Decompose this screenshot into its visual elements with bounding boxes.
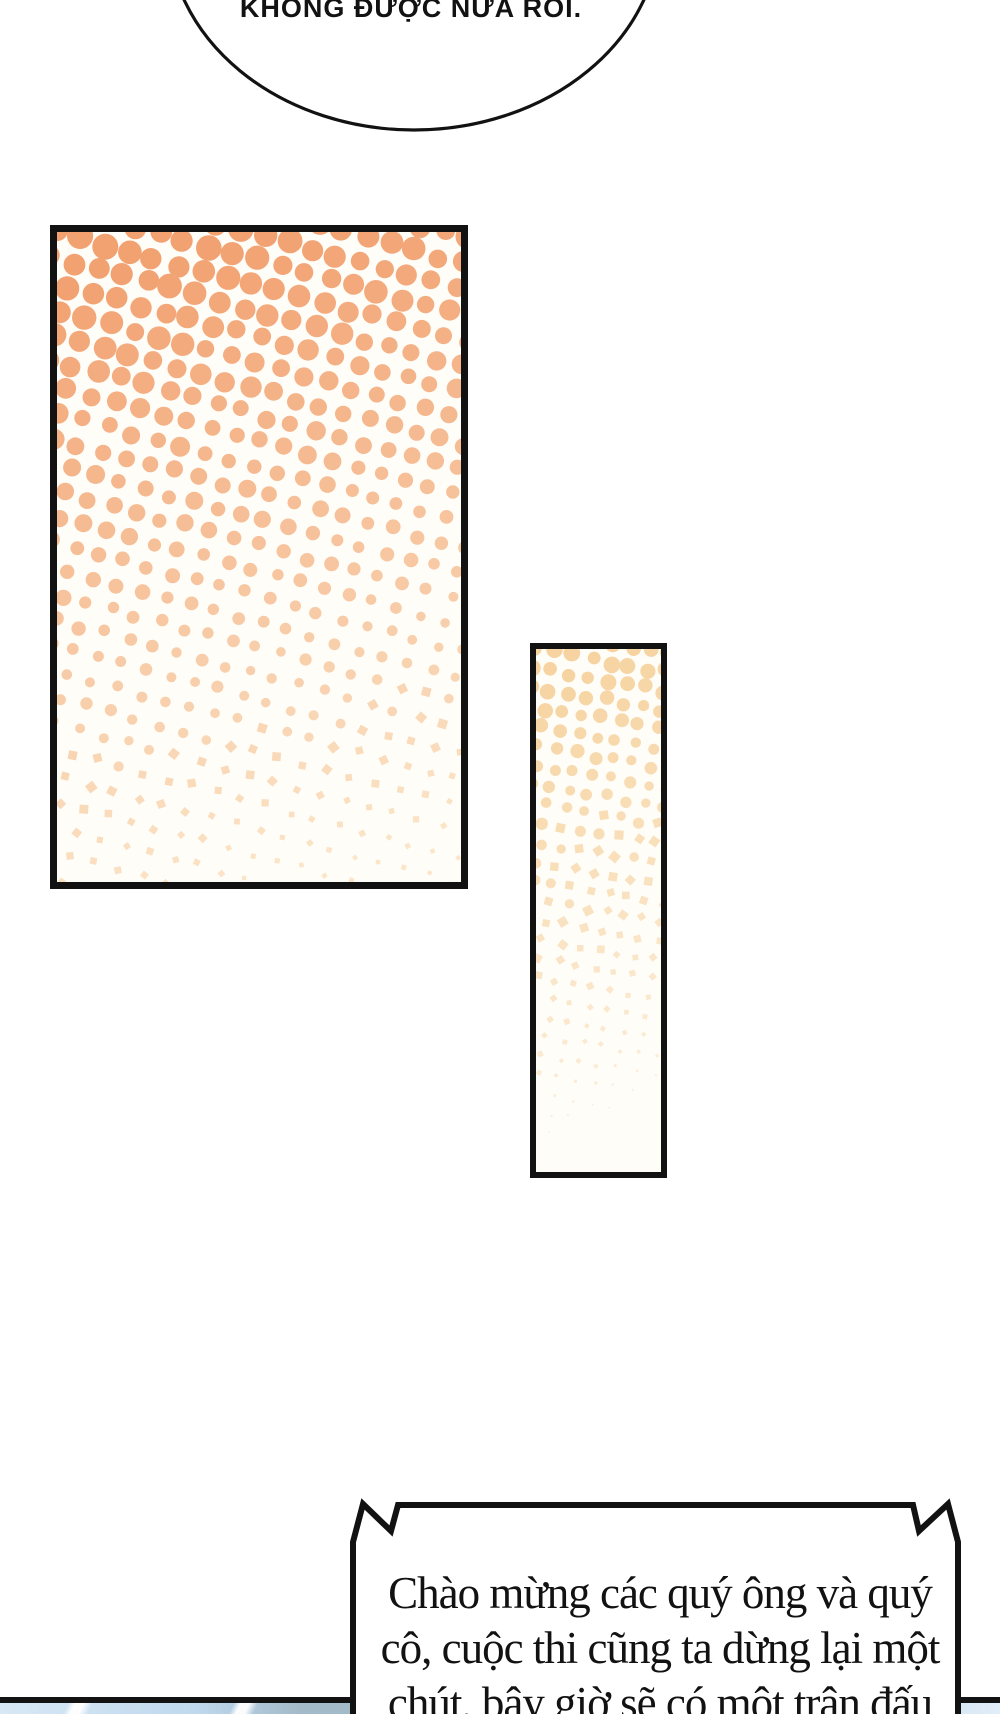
halftone-panel-small	[530, 643, 667, 1178]
announcement-line: Chào mừng các quý ông và quý	[360, 1566, 960, 1621]
announcement-text: Chào mừng các quý ông và quý cô, cuộc th…	[360, 1566, 960, 1714]
halftone-pattern-large	[57, 232, 461, 882]
sky-image-left	[0, 1703, 353, 1714]
halftone-panel-large	[50, 225, 468, 889]
announcement-line: chút, bây giờ sẽ có một trận đấu	[360, 1676, 960, 1714]
comic-page: KHÔNG ĐƯỢC NỮA RỒI. Chào mừng các quý ôn…	[0, 0, 1000, 1714]
announcement-line: cô, cuộc thi cũng ta dừng lại một	[360, 1621, 960, 1676]
speech-bubble-text: KHÔNG ĐƯỢC NỮA RỒI.	[170, 0, 652, 24]
halftone-pattern-small	[536, 649, 661, 1172]
